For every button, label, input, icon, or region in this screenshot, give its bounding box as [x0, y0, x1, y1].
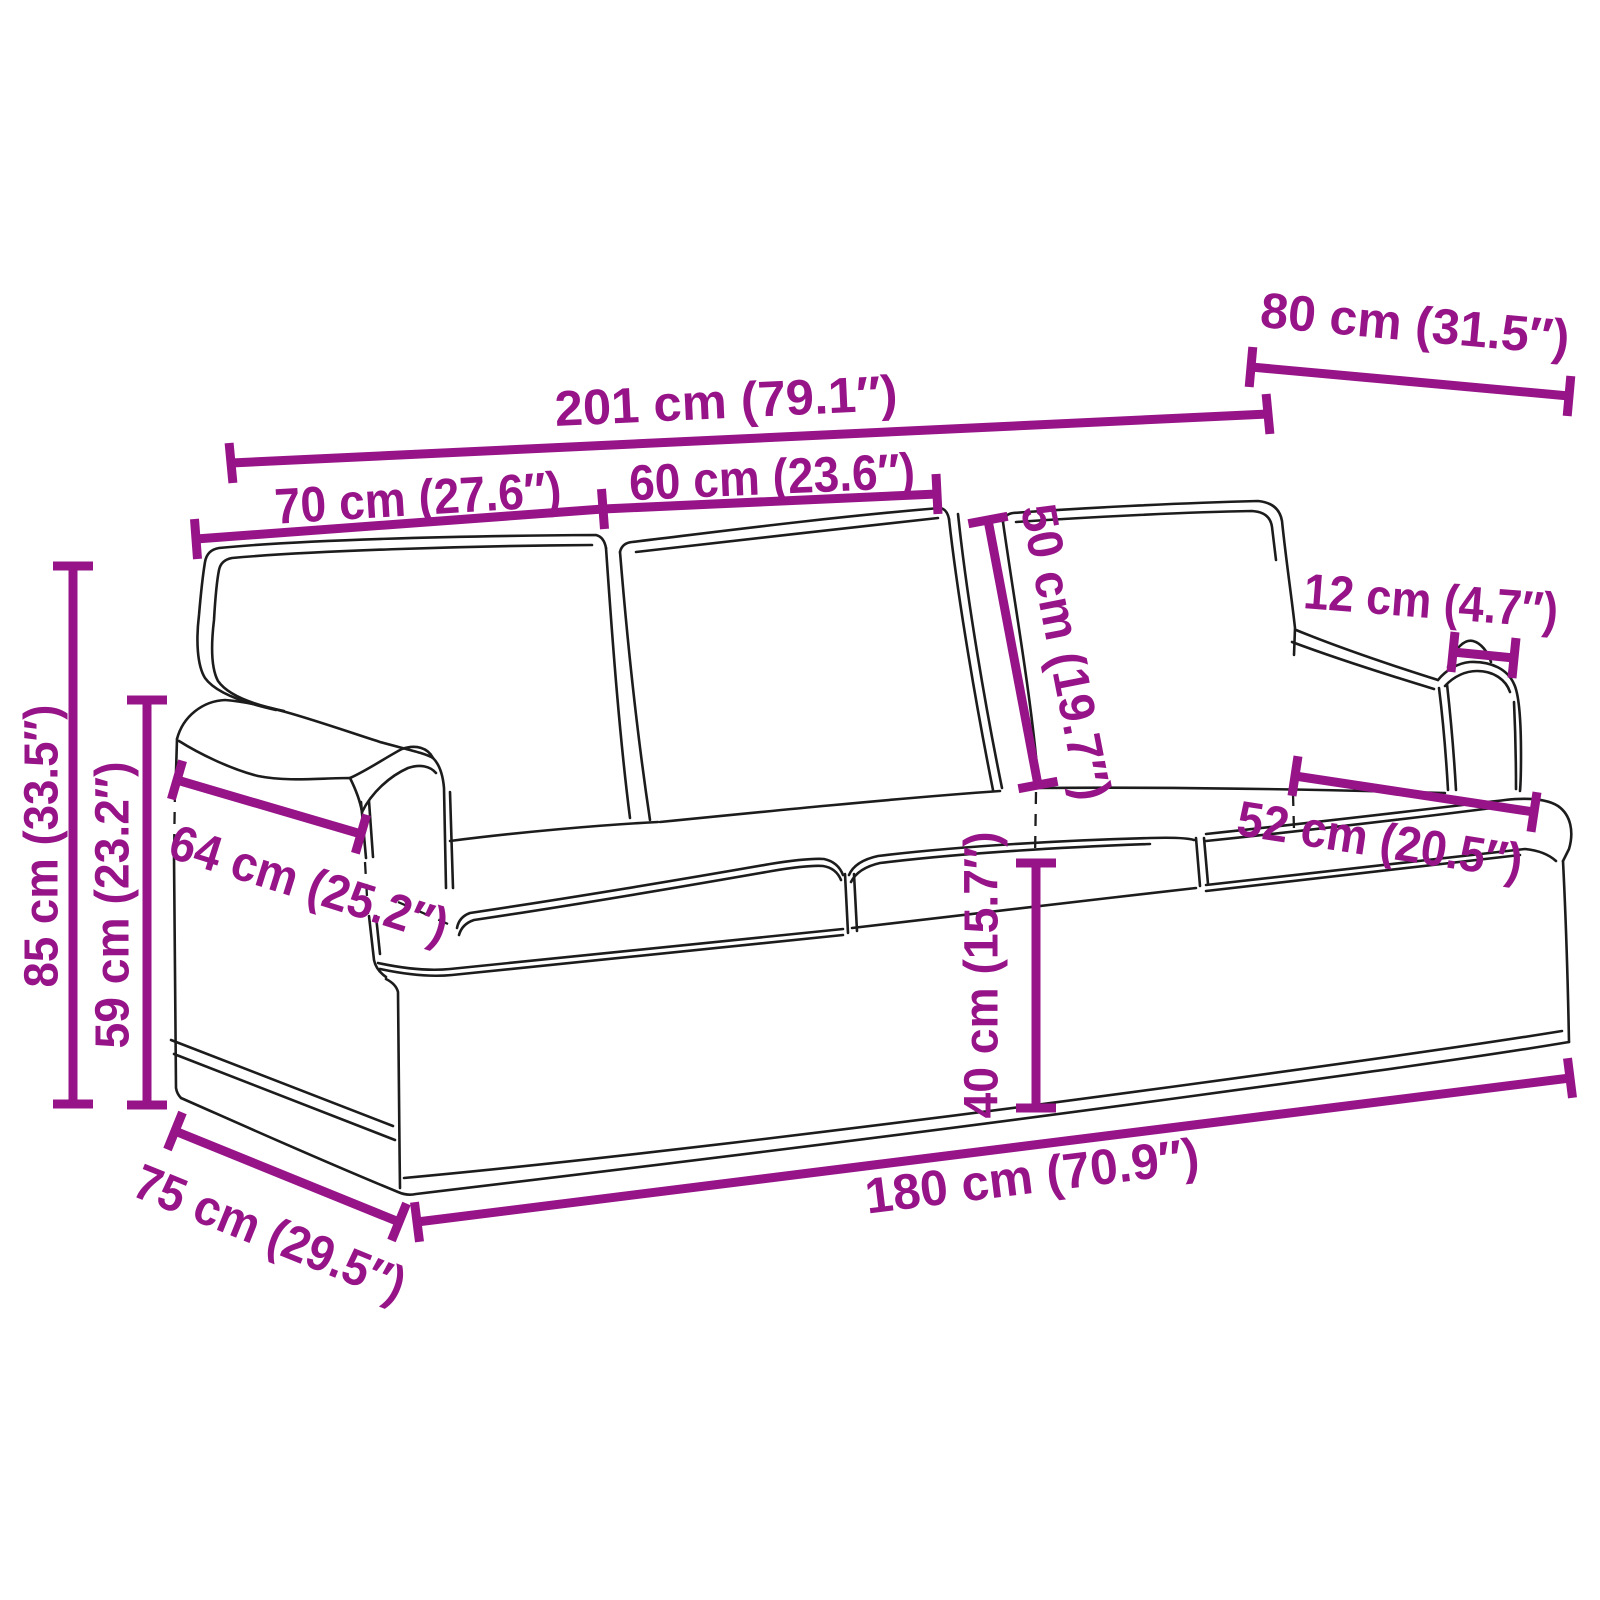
- svg-text:40 cm (15.7″): 40 cm (15.7″): [956, 832, 1009, 1119]
- svg-text:85 cm (33.5″): 85 cm (33.5″): [16, 705, 69, 988]
- svg-text:59 cm (23.2″): 59 cm (23.2″): [87, 762, 140, 1049]
